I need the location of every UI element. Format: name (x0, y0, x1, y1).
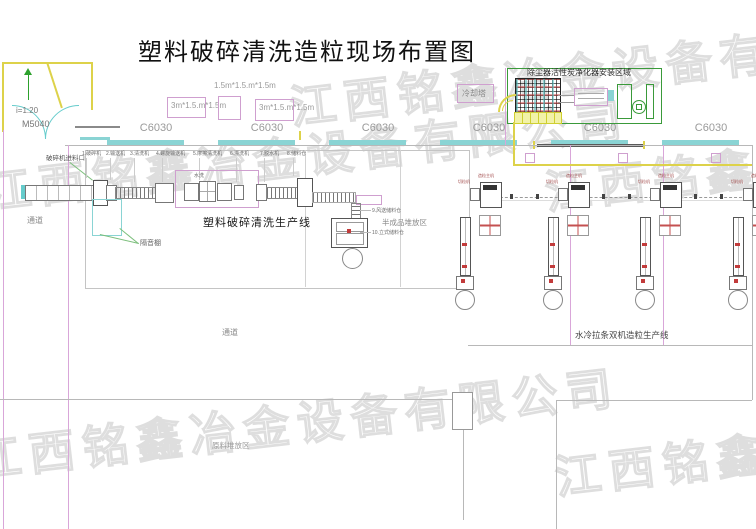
air-conveyor (312, 192, 356, 203)
wall-bottom-right-vertical (556, 400, 557, 529)
cyan-beam-small (80, 137, 110, 140)
extruder-head (568, 182, 590, 208)
trough-joint (642, 243, 647, 246)
page-title: 塑料破碎清洗造粒现场布置图 (138, 32, 476, 67)
watermark-text: 江西铭鑫冶金设备有限公司 (0, 352, 623, 491)
label-leader-tick (162, 158, 163, 182)
trough-joint (462, 243, 467, 246)
leader-line (360, 210, 371, 211)
friction-washer (199, 181, 216, 202)
silo-bottom (336, 233, 364, 245)
water-note: 水洗 (194, 172, 204, 179)
extruder-gearbox (558, 188, 568, 201)
door-code-label: M5040 (22, 119, 50, 129)
machine-block (184, 183, 199, 201)
belt-conveyor (25, 185, 95, 201)
screw-conveyor (115, 187, 157, 199)
winder-circle (543, 290, 563, 310)
watermark-text: 江西铭鑫冶金设备有限公司 (551, 369, 756, 508)
unit-label: 切粒机 (546, 179, 558, 185)
soundproof-label: 隔音棚 (140, 238, 161, 248)
dimension-label-top: 1.5m*1.5.m*1.5m (214, 81, 276, 90)
wash-line-name: 塑料破碎清洗生产线 (203, 214, 311, 230)
unit-label: 切粒机 (638, 179, 650, 185)
dewatering-machine (297, 178, 313, 207)
north-arrow-shaft (28, 74, 29, 100)
red-marker (641, 279, 645, 283)
entrance-wall-right (91, 62, 93, 110)
unit-label: 造粒主机 (566, 173, 582, 179)
pellet-bay-bottom-wall (468, 345, 752, 346)
red-marker (549, 279, 553, 283)
line-fitting (628, 194, 631, 199)
equipment-label: 6.漂洗机 (230, 150, 249, 157)
trough-joint (462, 265, 467, 268)
trough-joint (550, 243, 555, 246)
column-label-c6030: C6030 (343, 122, 413, 134)
pelletizer-cutter (456, 276, 474, 290)
cyan-connector-box (608, 90, 614, 101)
leader-line (360, 232, 371, 233)
dimension-label-right: 3m*1.5.m*1.5m (259, 103, 314, 112)
entrance-ramp-line (46, 62, 63, 108)
purifier-tower (617, 84, 632, 119)
equipment-label: 1.破碎机 (82, 150, 101, 157)
dimension-box-middle (218, 96, 241, 120)
purifier-spec-box (574, 88, 608, 106)
extruder-gearbox (743, 188, 753, 201)
pellet-line-name: 水冷拉条双机造粒生产线 (575, 329, 669, 341)
pellet-unit: 造粒主机 切粒机 (452, 125, 532, 315)
extruder-head (660, 182, 682, 208)
pelletizer-cutter (729, 276, 747, 290)
purifier-fan-core (636, 104, 642, 110)
unit-label: 造粒主机 (478, 173, 494, 179)
pelletizer-cutter (636, 276, 654, 290)
spec-text-line (578, 98, 604, 99)
label-leader-tick (293, 158, 294, 176)
column-label-c6030: C6030 (121, 122, 191, 134)
line-fitting (720, 194, 723, 199)
filter-tray (514, 112, 562, 124)
motor-base (479, 215, 501, 236)
magenta-column-marker (711, 153, 721, 163)
extruder-gearbox (470, 188, 480, 201)
ramp-slope-label: i=1:20 (16, 106, 38, 115)
raw-storage-label: 原料堆放区 (212, 440, 250, 451)
extruder-gearbox (650, 188, 660, 201)
blower-circle (342, 248, 363, 269)
spec-text-line (578, 93, 604, 94)
duct-line (558, 95, 574, 103)
trough-joint (735, 243, 740, 246)
pelletizer-cutter (544, 276, 562, 290)
label-leader-tick (264, 158, 265, 182)
site-layout-drawing: 江西铭鑫冶金设备有限公司 江西铭鑫冶金设备有限公司 江西铭鑫冶金设备有限公司 江… (0, 0, 756, 529)
dust-filter-grid-icon (515, 78, 561, 113)
grid-line-left-outer (3, 130, 4, 529)
screw-conveyor (266, 187, 300, 199)
red-marker (461, 279, 465, 283)
side-equipment-label: 9.风送储料仓 (372, 207, 401, 214)
yellow-tick (299, 131, 301, 140)
motor-base (659, 215, 681, 236)
machine-block (217, 183, 232, 201)
unit-label: 造粒主机 (658, 173, 674, 179)
motor-base (752, 215, 756, 236)
extruder-head (480, 182, 502, 208)
column-label-c6030: C6030 (232, 122, 302, 134)
cooling-tower-label: 冷却塔 (462, 88, 486, 99)
grid-line-left-inner (68, 145, 69, 529)
entrance-wall-left (2, 62, 4, 132)
passage-label-mid: 通道 (222, 327, 238, 338)
purifier-stack (646, 84, 654, 119)
pellet-unit: 造粒主机 切粒机 (540, 125, 620, 315)
pellet-unit: 造粒主机 切粒机 (725, 125, 756, 315)
winder-circle (455, 290, 475, 310)
pellet-unit: 造粒主机 切粒机 (632, 125, 712, 315)
unit-label: 造粒主机 (751, 173, 756, 179)
line-fitting (536, 194, 539, 199)
semi-storage-label: 半成品堆放区 (382, 217, 427, 228)
side-equipment-label: 10.立式储料仓 (372, 229, 404, 236)
trough-joint (642, 265, 647, 268)
red-marker (734, 279, 738, 283)
equipment-label: 7.脱水机 (260, 150, 279, 157)
unit-label: 切粒机 (458, 179, 470, 185)
equipment-label: 3.清洗机 (130, 150, 149, 157)
wall-lower (0, 399, 463, 400)
wall-bottom-right (556, 400, 752, 401)
equipment-label: 2.输送机 (106, 150, 125, 157)
door-swing-arc-right (45, 105, 79, 139)
unit-label: 切粒机 (731, 179, 743, 185)
winder-circle (728, 290, 748, 310)
storage-silo (331, 218, 368, 248)
label-leader-tick (134, 158, 135, 182)
wall-segment (75, 126, 120, 128)
north-arrow-icon (24, 68, 32, 75)
red-marker (347, 229, 351, 233)
washer-unit (155, 183, 174, 203)
dust-area-title: 除尘器活性炭净化器安装区域 (527, 67, 631, 78)
equipment-label: 5.摩擦清洗机 (193, 150, 222, 157)
equipment-label: 8.储料仓 (287, 150, 306, 157)
equipment-label: 4.螺旋输送机 (156, 150, 185, 157)
winder-circle (635, 290, 655, 310)
soundproof-shed-box (92, 199, 122, 236)
trough-joint (735, 265, 740, 268)
machine-block (234, 185, 244, 200)
feed-port-label: 破碎机进料口 (46, 152, 85, 162)
trough-joint (550, 265, 555, 268)
label-leader-tick (86, 158, 87, 178)
lower-door-box (452, 392, 473, 430)
motor-base (567, 215, 589, 236)
label-leader-tick (110, 158, 111, 180)
passage-label-left: 通道 (27, 215, 43, 226)
